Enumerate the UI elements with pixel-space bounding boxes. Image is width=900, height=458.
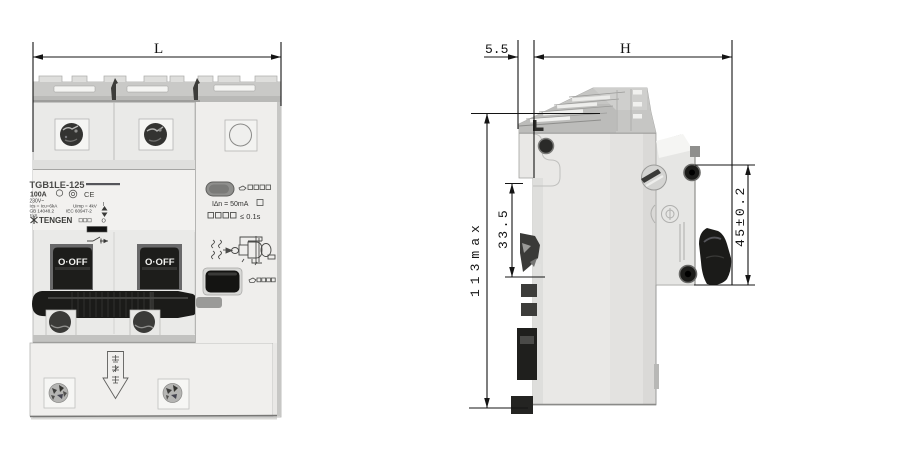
svg-text:TENGEN: TENGEN	[39, 216, 73, 225]
svg-text:O: O	[102, 219, 107, 225]
svg-text:TGB1LE-125: TGB1LE-125	[30, 180, 85, 190]
svg-text:L: L	[154, 41, 163, 57]
svg-text:45±0.2: 45±0.2	[733, 185, 748, 247]
svg-text:H: H	[620, 41, 631, 57]
svg-text:I∆n = 50mA: I∆n = 50mA	[212, 201, 249, 208]
svg-text:O·OFF: O·OFF	[58, 257, 88, 268]
svg-text:33.5: 33.5	[496, 208, 511, 249]
svg-text:CE: CE	[84, 190, 94, 199]
svg-text:≤ 0.1s: ≤ 0.1s	[240, 212, 261, 221]
svg-text:O·OFF: O·OFF	[145, 257, 175, 268]
svg-text:100A: 100A	[30, 192, 47, 199]
svg-text:113max: 113max	[468, 220, 483, 297]
svg-text:IEC 60947-2: IEC 60947-2	[66, 209, 92, 214]
svg-text:5.5: 5.5	[485, 42, 508, 57]
